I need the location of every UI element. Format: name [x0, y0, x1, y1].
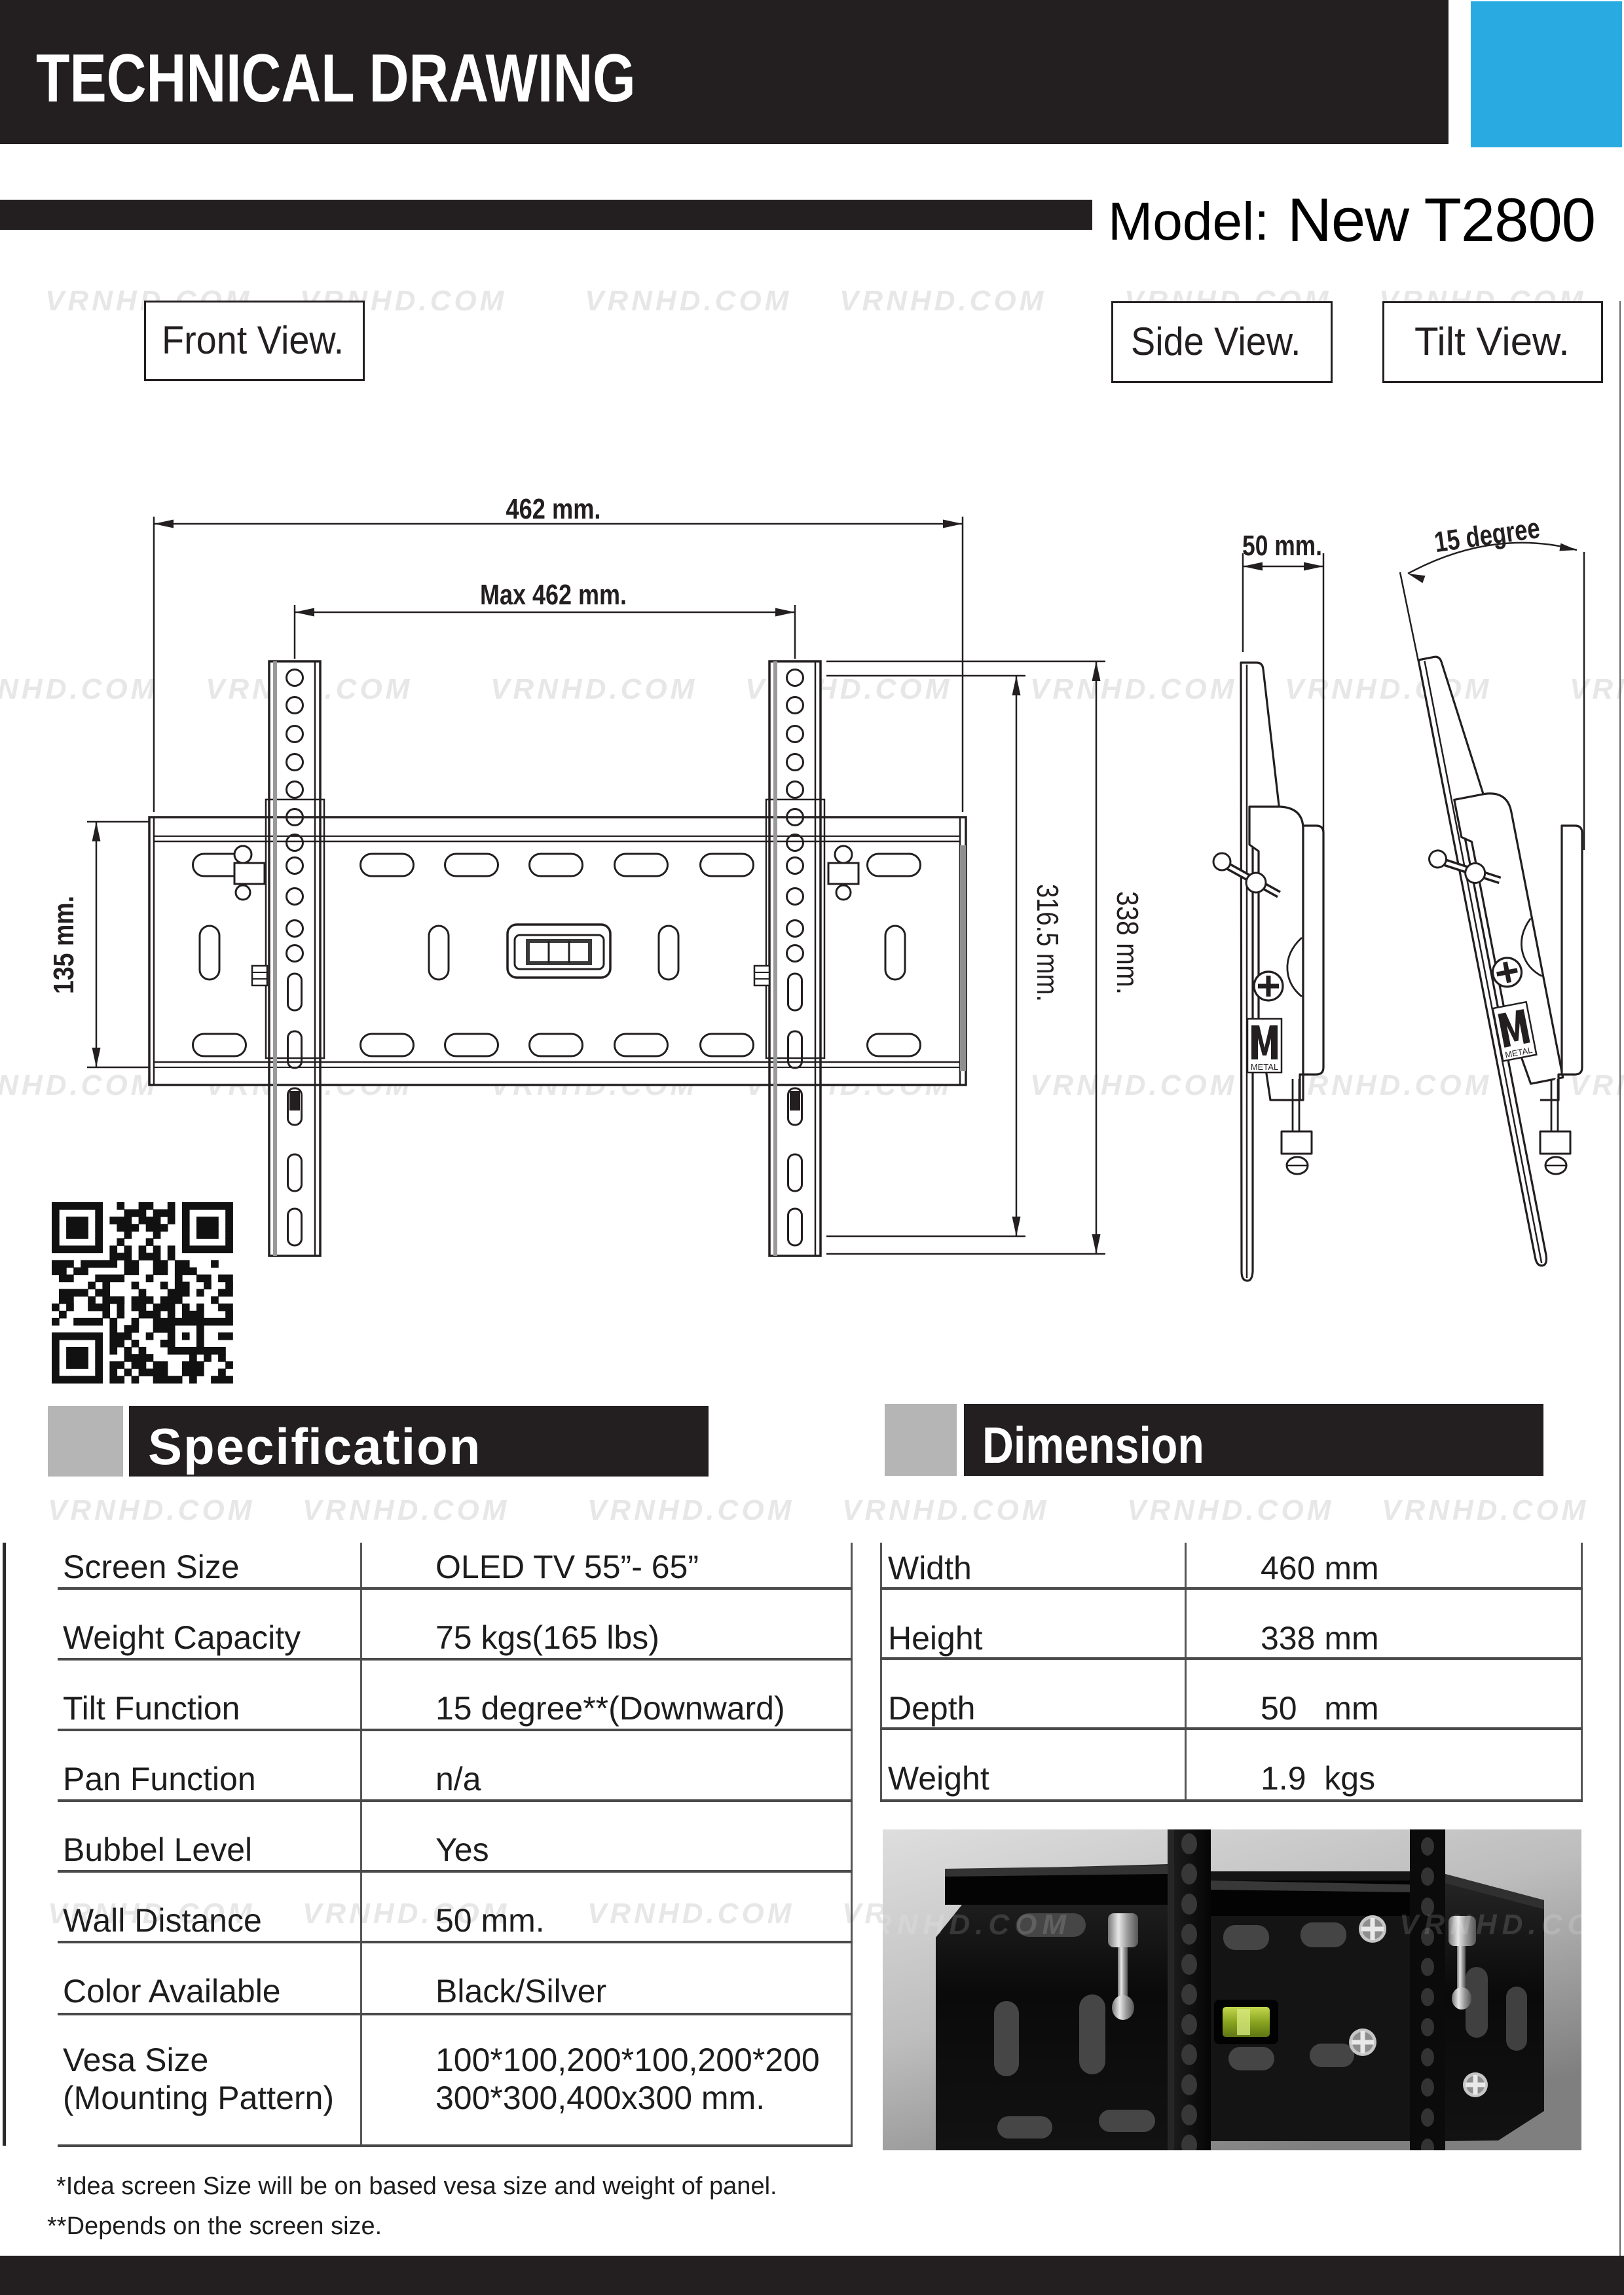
svg-text:135 mm.: 135 mm. — [48, 896, 80, 994]
svg-text:Max 462 mm.: Max 462 mm. — [480, 579, 627, 611]
svg-text:50 mm.: 50 mm. — [1242, 530, 1322, 562]
svg-text:VRNHD.COM: VRNHD.COM — [1399, 1909, 1581, 1941]
svg-text:316.5 mm.: 316.5 mm. — [1031, 884, 1065, 1002]
svg-text:RNHD.COM: RNHD.COM — [883, 1909, 1071, 1941]
svg-text:338 mm.: 338 mm. — [1111, 891, 1145, 995]
svg-text:15 degree: 15 degree — [1432, 512, 1541, 559]
svg-text:METAL: METAL — [1251, 1062, 1278, 1072]
svg-text:462 mm.: 462 mm. — [506, 493, 601, 525]
